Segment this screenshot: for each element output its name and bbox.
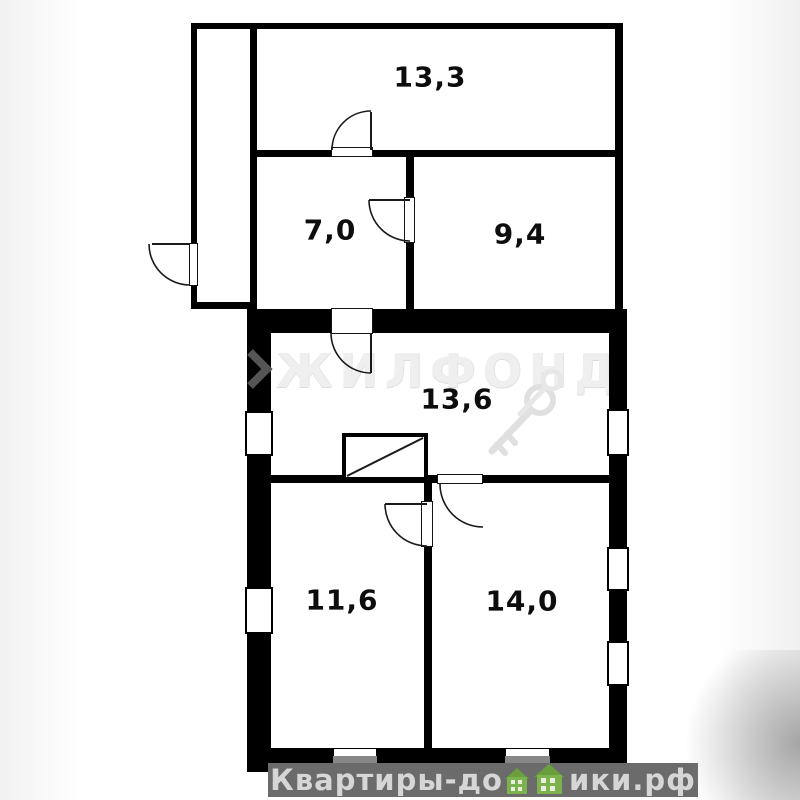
room-label-11-6: 11,6 [305, 584, 378, 617]
door-11-6 [421, 501, 433, 547]
wall-lower-right-a [609, 333, 627, 410]
wall-divider-11-14-bottom [424, 546, 432, 748]
footer-watermark-text-left: Квартиры-до [270, 763, 503, 797]
stove-block [342, 433, 428, 481]
door-7-9 [404, 197, 415, 243]
house-small [505, 768, 529, 794]
door-13-3 [331, 147, 373, 157]
wall-lower-top-left [247, 309, 332, 333]
door-arc-13-3 [332, 111, 371, 150]
wall-lower-right-d [609, 685, 627, 748]
key-shaft [492, 411, 530, 451]
wall-lower-top-right [373, 309, 627, 333]
corner-shading-artifact [670, 650, 800, 800]
wall-lower-left-c [247, 633, 271, 748]
door-arc-14-0 [440, 484, 483, 527]
wall-lower-right-b [609, 455, 627, 548]
wall-porch-right [250, 29, 257, 308]
house-large [534, 764, 564, 794]
wall-porch-bottom [191, 302, 257, 309]
footer-watermark-bar: Квартиры-до ики.рф [268, 763, 698, 797]
door-14-0 [437, 474, 483, 484]
room-label-14-0: 14,0 [485, 585, 558, 618]
wall-divider-13-6-right [483, 475, 610, 483]
wall-divider-7-9-bottom [406, 242, 414, 310]
room-label-13-3: 13,3 [393, 61, 466, 94]
wall-divider-7-9-top [406, 157, 414, 198]
window [245, 411, 273, 456]
window [607, 547, 629, 591]
wall-divider-11-14-top [424, 483, 432, 502]
wall-lower-right-c [609, 590, 627, 642]
window [245, 587, 273, 634]
door-arc-entrance [149, 244, 190, 285]
window [607, 641, 629, 686]
wall-upper-left-a [191, 23, 197, 243]
left-edge-shading [0, 0, 80, 800]
room-label-7-0: 7,0 [304, 214, 357, 247]
key-tooth [497, 444, 505, 453]
wall-13-3-bottom-left [250, 150, 332, 157]
green-houses-icon [504, 763, 568, 795]
floor-plan-canvas: ЖИЛФОНД [0, 0, 800, 800]
room-label-13-6: 13,6 [420, 383, 493, 416]
room-label-9-4: 9,4 [494, 218, 547, 251]
key-tooth [507, 434, 515, 443]
wall-upper-right [615, 29, 623, 310]
wall-13-3-bottom-right [373, 150, 623, 157]
door-entrance-porch [189, 243, 198, 286]
wall-lower-left-a [247, 333, 271, 412]
window [607, 409, 629, 456]
door-entry-13-6 [331, 308, 373, 334]
wall-lower-left-b [247, 455, 271, 588]
